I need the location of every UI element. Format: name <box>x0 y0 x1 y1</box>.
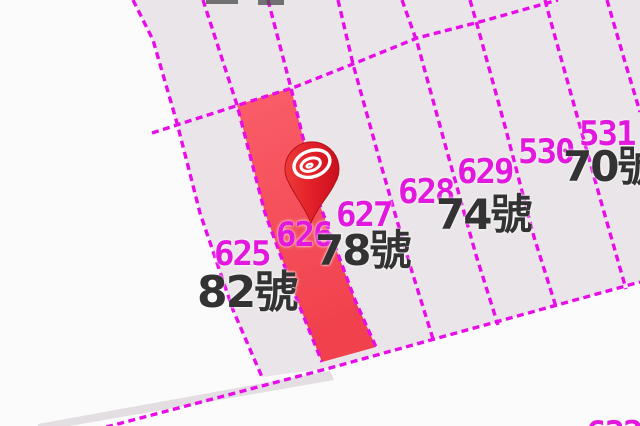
address-label-74: 74號 <box>436 194 530 236</box>
parcel-label-bottom-partial: 632 <box>586 417 640 426</box>
address-label-78: 78號 <box>315 230 409 272</box>
parcel-layer <box>0 0 640 426</box>
map-canvas[interactable]: 625 626 627 628 629 530 531 632 82號 78號 … <box>0 0 640 426</box>
parcel-label-629: 629 <box>457 155 512 189</box>
address-label-70: 70號 <box>563 146 640 188</box>
address-label-82: 82號 <box>197 271 296 315</box>
parcel-label-625: 625 <box>214 237 269 271</box>
top-edge-text-fragment <box>206 0 238 4</box>
top-edge-text-fragment <box>258 0 284 5</box>
